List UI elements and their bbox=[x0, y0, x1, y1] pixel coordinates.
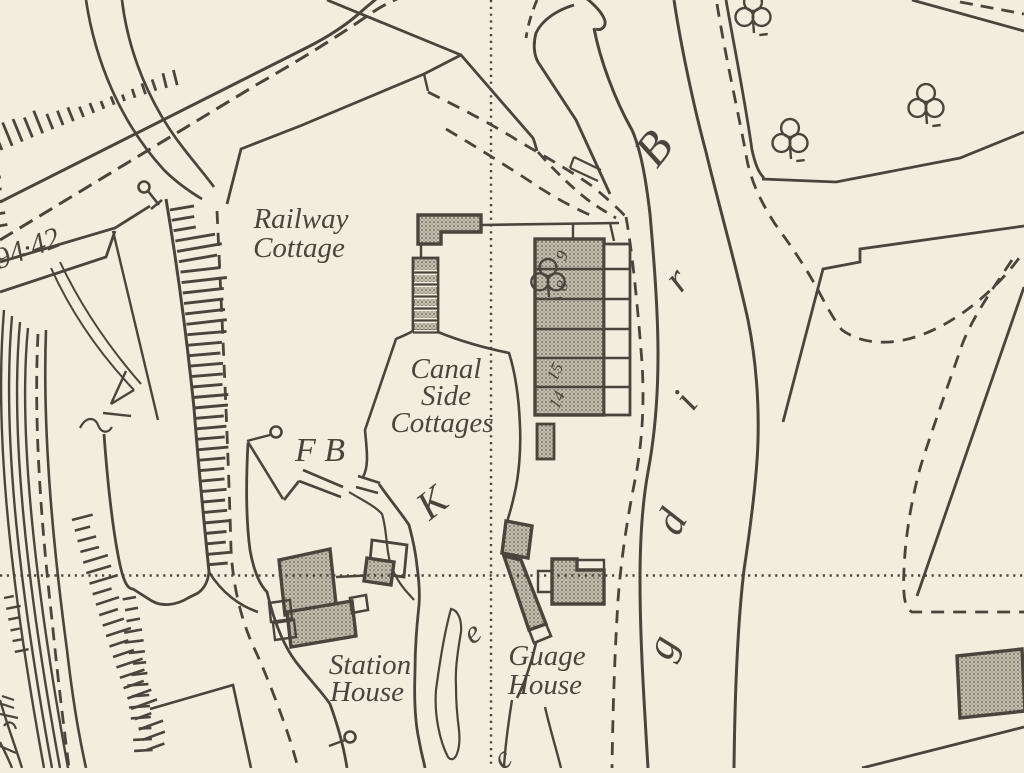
svg-text:Cottage: Cottage bbox=[253, 232, 345, 264]
svg-text:Railway: Railway bbox=[252, 203, 348, 235]
svg-text:Cottages: Cottages bbox=[390, 407, 493, 439]
svg-text:House: House bbox=[329, 676, 404, 708]
svg-text:House: House bbox=[507, 669, 582, 701]
svg-text:F B: F B bbox=[294, 432, 345, 469]
svg-text:Guage: Guage bbox=[508, 640, 585, 672]
